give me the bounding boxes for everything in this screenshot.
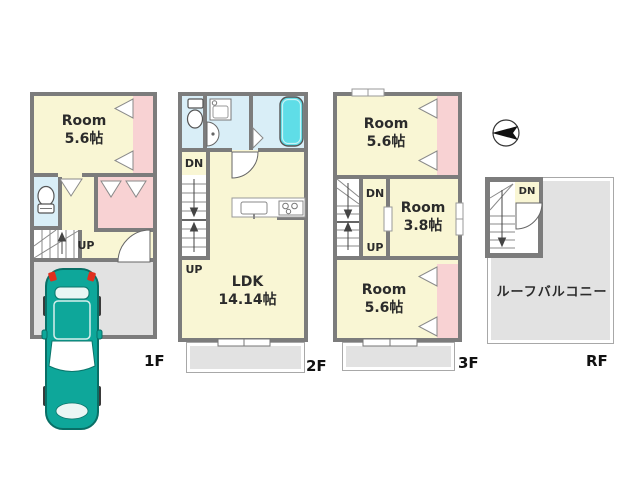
room-label-3f-south: Room 5.6帖 [338,282,430,317]
room-size: 5.6帖 [338,300,430,318]
ldk-label-2f: LDK 14.14帖 [200,274,295,309]
floor-label-3f: 3F [458,354,488,373]
stair-up-label-3f: UP [362,241,388,255]
stair-dn-label-rf: DN [515,186,539,199]
car-top-view-icon [42,269,102,429]
door-swing-icon [253,128,263,148]
room-name: Room [340,116,432,134]
room-size: 3.8帖 [390,218,456,236]
sliding-door-icon [218,339,270,346]
bathtub-icon [280,97,303,146]
kitchen-counter [232,198,305,219]
door-arc-ldk [232,152,258,178]
door-arc-rf [516,203,542,229]
floor-label-2f: 2F [306,357,336,376]
room-size: 5.6帖 [38,131,130,149]
stairs-2f-arrows [191,179,198,252]
washing-machine-icon [210,99,231,120]
room-name: Room [338,282,430,300]
stair-up-label-1f: UP [74,239,98,253]
room-size: 14.14帖 [200,292,295,310]
stove-icon [279,201,303,215]
kitchen-sink-icon [241,202,267,214]
toilet-icon [38,187,54,214]
room-label-3f-mid: Room 3.8帖 [390,200,456,235]
room-name: Room [390,200,456,218]
floor-plan-canvas: Room 5.6帖 UP 1F DN UP LDK 14.14帖 2F [0,0,640,480]
floor-label-rf: RF [586,352,616,371]
sliding-door-icon [363,339,417,346]
stairs-3f-arrows [345,183,352,250]
stairs-1f-arrow [59,233,66,254]
stair-dn-label-2f: DN [182,157,206,171]
room-size: 5.6帖 [340,134,432,152]
entrance-door-arc [118,230,150,262]
compass-north-icon [492,120,519,146]
room-name: LDK [200,274,295,292]
room-name: Room [38,113,130,131]
stairs-rf-arrow [499,190,506,246]
room-label-3f-north: Room 5.6帖 [340,116,432,151]
washbasin-icon [207,122,219,146]
toilet-icon [188,99,204,128]
stair-dn-label-3f: DN [362,187,388,201]
roof-balcony-label: ルーフバルコニー [492,285,612,301]
floor-label-1f: 1F [144,352,174,371]
room-label-1f: Room 5.6帖 [38,113,130,148]
stairs-1f-treads [34,230,78,258]
